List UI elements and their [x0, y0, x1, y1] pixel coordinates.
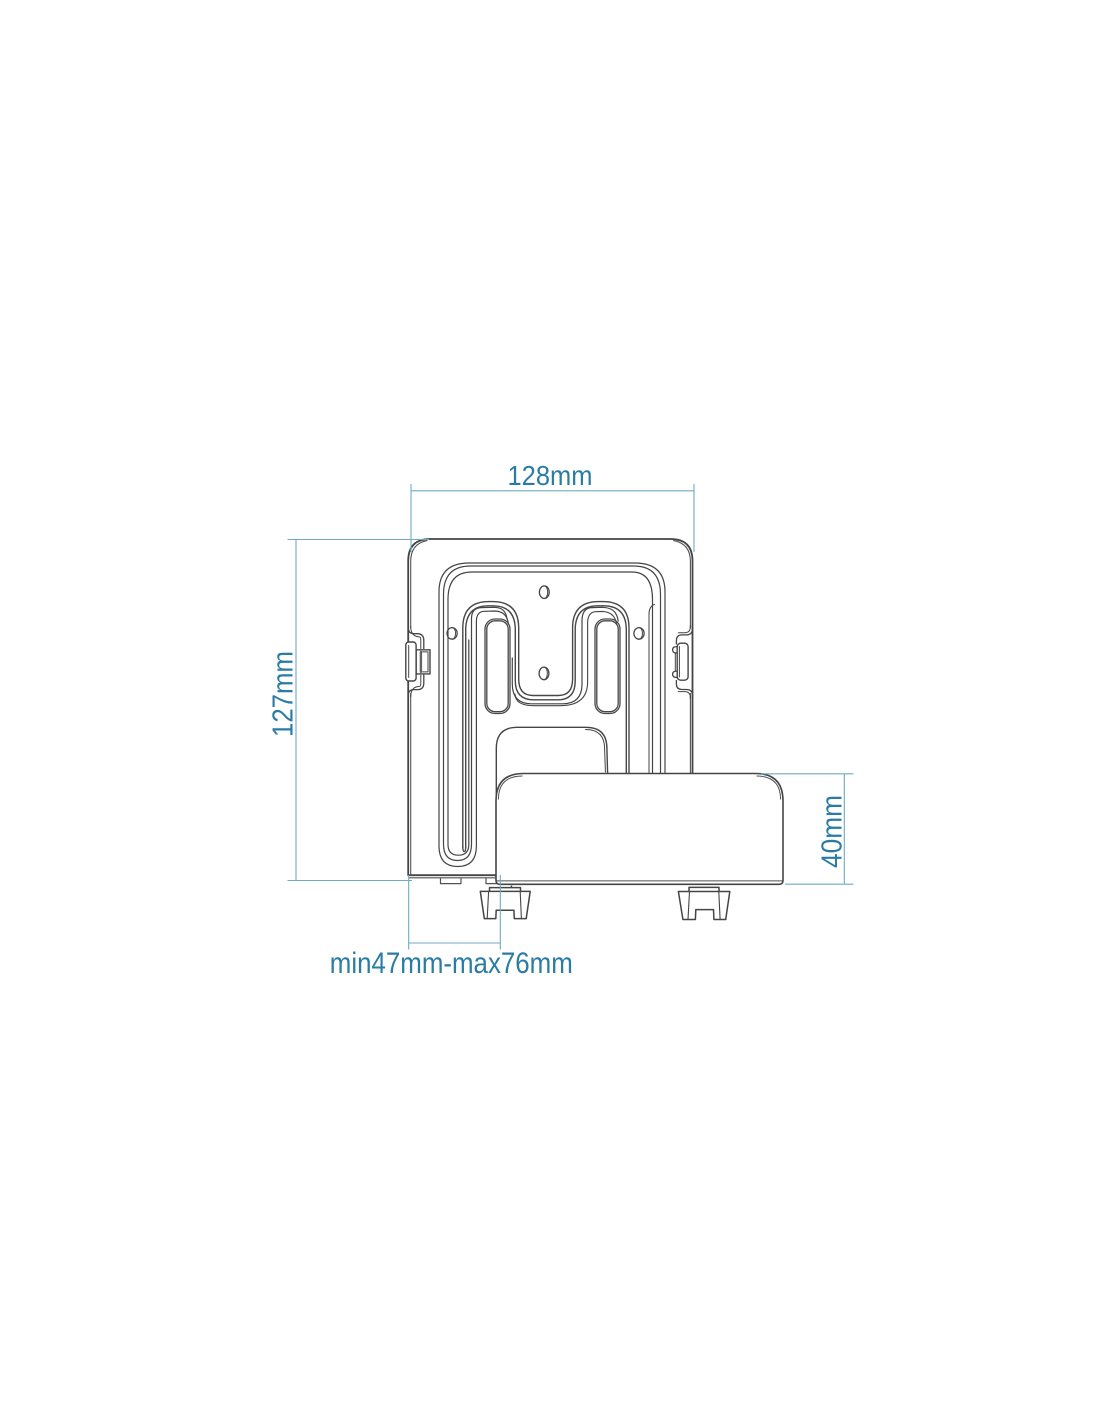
svg-text:127mm: 127mm — [268, 651, 300, 737]
svg-text:128mm: 128mm — [508, 460, 593, 491]
svg-text:40mm: 40mm — [817, 795, 849, 868]
svg-text:min47mm-max76mm: min47mm-max76mm — [330, 947, 573, 980]
